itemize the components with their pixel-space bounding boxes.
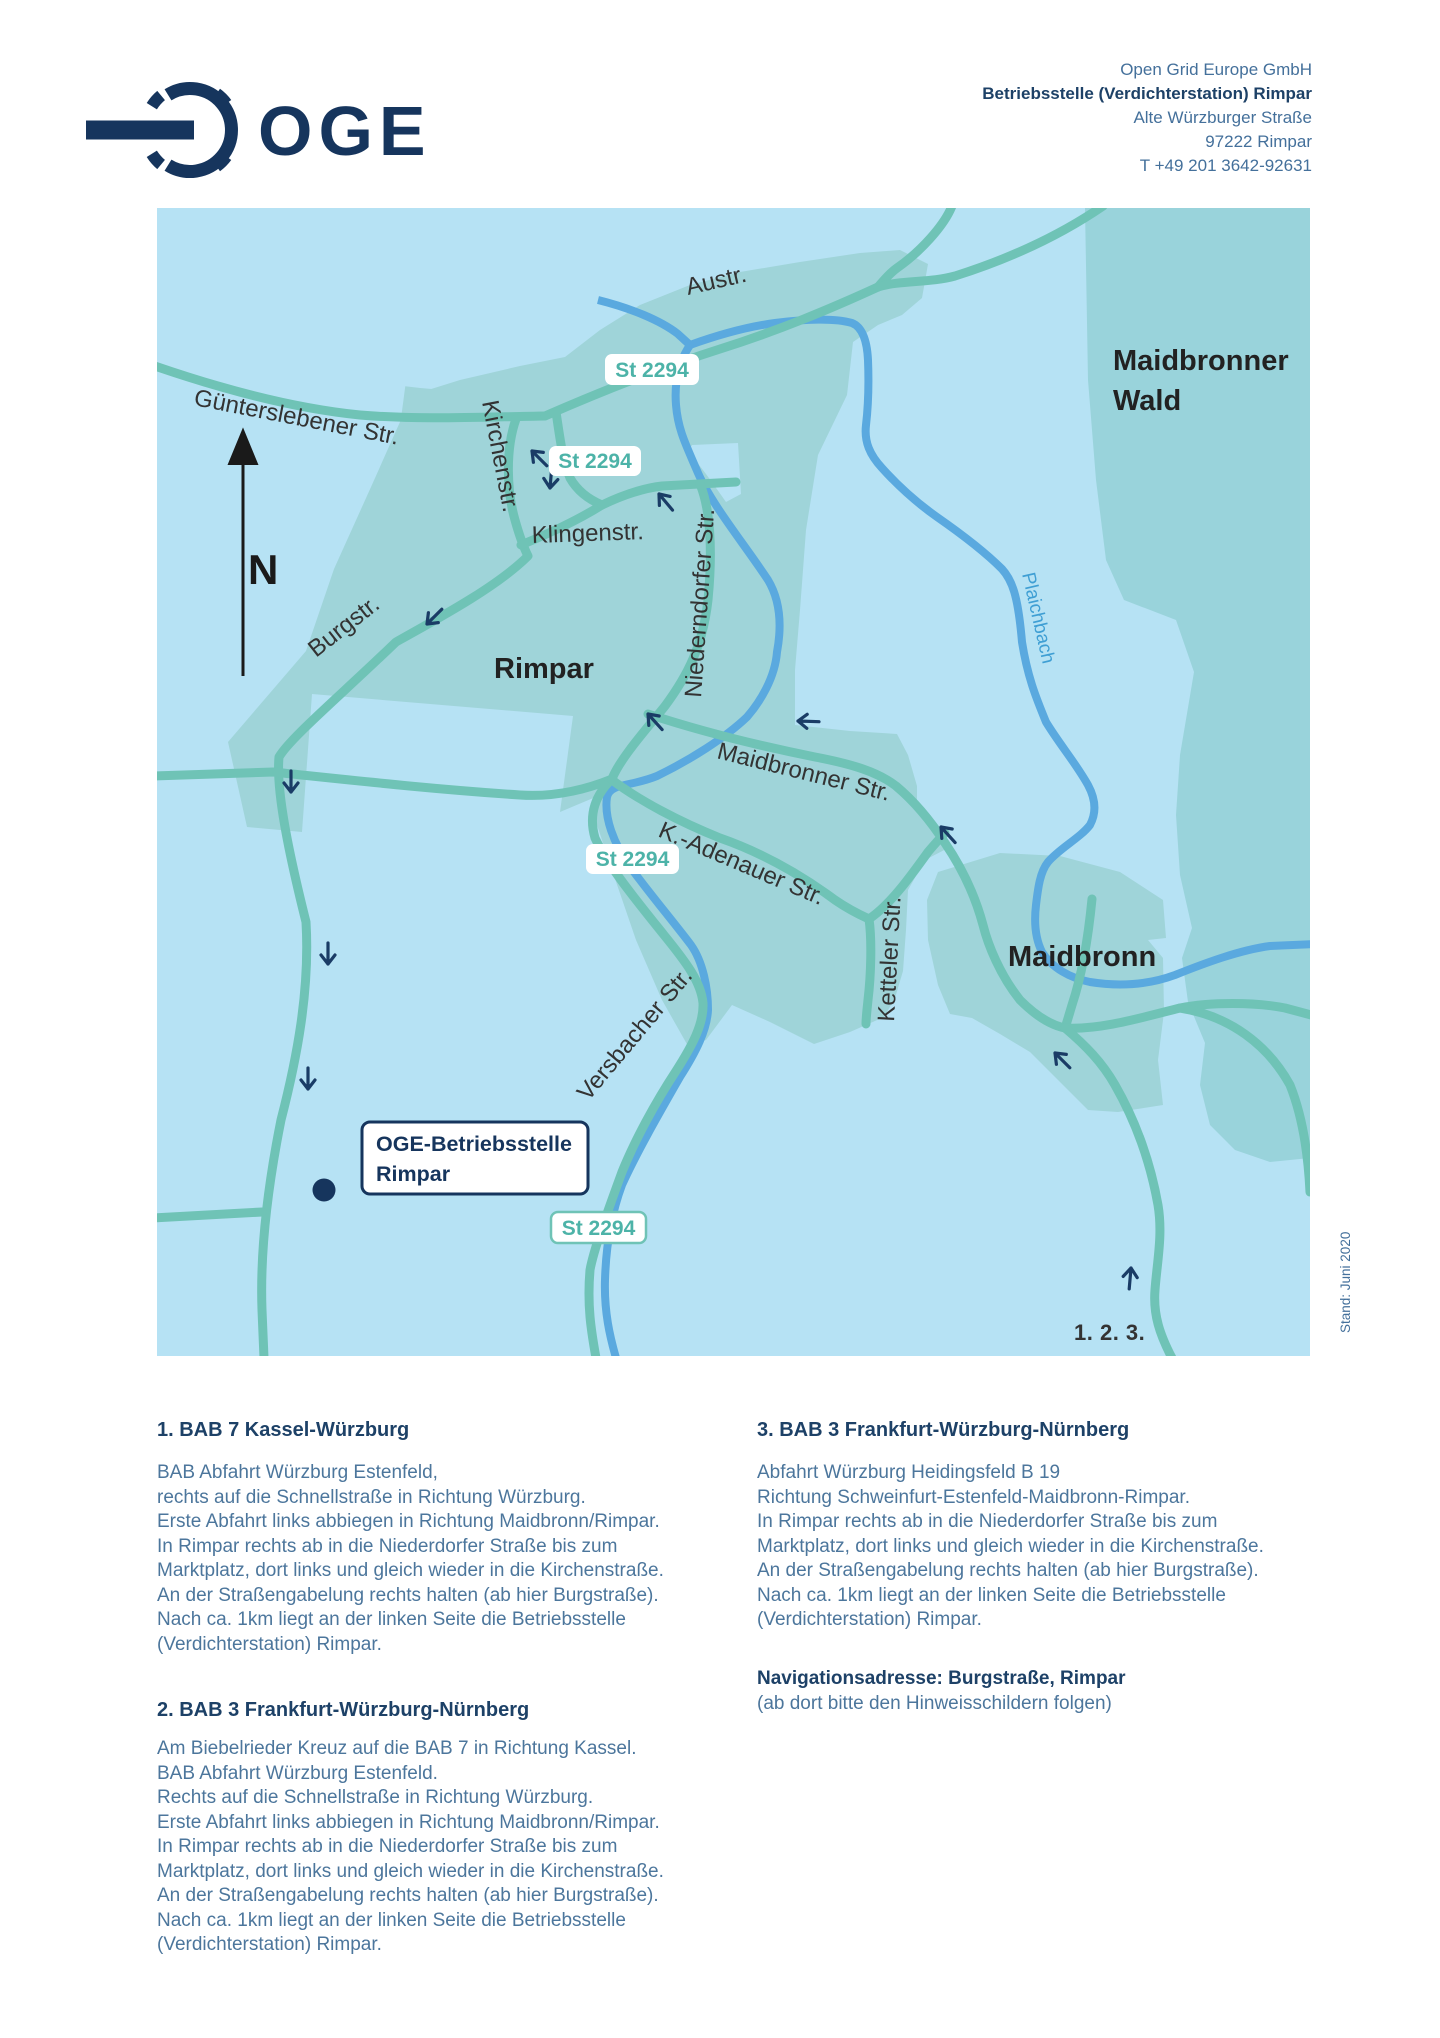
svg-text:Rimpar: Rimpar xyxy=(376,1162,451,1186)
svg-text:St 2294: St 2294 xyxy=(615,359,689,382)
svg-text:N: N xyxy=(248,546,278,593)
svg-text:Rimpar: Rimpar xyxy=(494,653,594,685)
svg-text:Maidbronn: Maidbronn xyxy=(1008,941,1156,973)
svg-text:Klingenstr.: Klingenstr. xyxy=(531,518,644,549)
svg-text:Wald: Wald xyxy=(1113,385,1181,417)
svg-text:Maidbronner: Maidbronner xyxy=(1113,345,1289,377)
svg-text:St 2294: St 2294 xyxy=(596,848,670,871)
svg-text:St 2294: St 2294 xyxy=(558,450,632,473)
svg-text:OGE-Betriebsstelle: OGE-Betriebsstelle xyxy=(376,1132,572,1156)
svg-text:1. 2. 3.: 1. 2. 3. xyxy=(1074,1320,1145,1345)
svg-text:St 2294: St 2294 xyxy=(562,1217,636,1240)
